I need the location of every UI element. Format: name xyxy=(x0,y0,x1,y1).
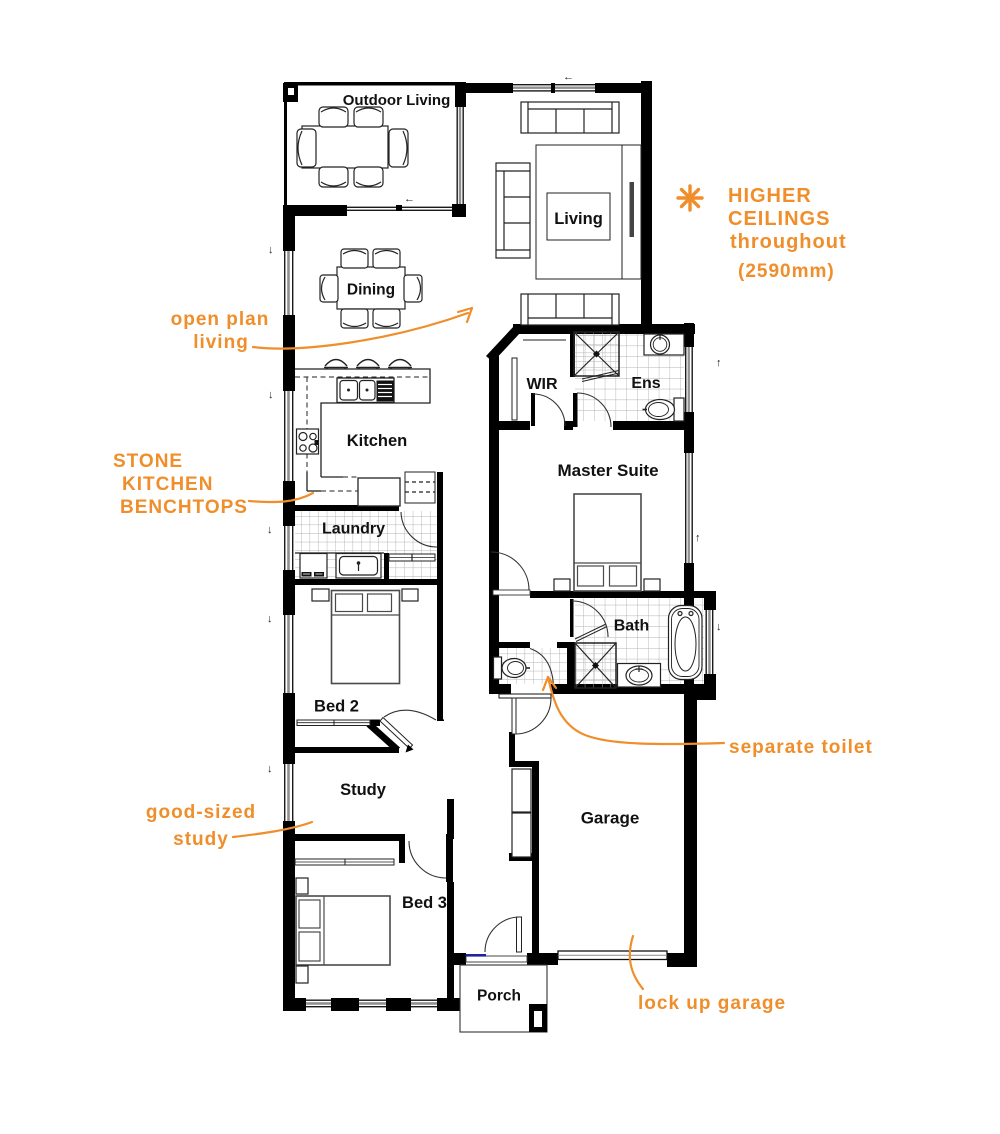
svg-text:Kitchen: Kitchen xyxy=(347,432,408,450)
svg-text:living: living xyxy=(193,332,249,353)
svg-text:↑: ↑ xyxy=(695,532,701,544)
svg-text:Bath: Bath xyxy=(614,618,650,635)
svg-text:Ens: Ens xyxy=(631,375,660,392)
svg-text:CEILINGS: CEILINGS xyxy=(728,208,830,230)
svg-text:BENCHTOPS: BENCHTOPS xyxy=(120,497,248,518)
svg-text:↓: ↓ xyxy=(268,244,274,256)
svg-text:lock up garage: lock up garage xyxy=(638,993,786,1014)
svg-text:WIR: WIR xyxy=(526,376,558,393)
svg-text:good-sized: good-sized xyxy=(146,802,256,823)
svg-text:↓: ↓ xyxy=(268,389,274,401)
svg-text:Living: Living xyxy=(554,210,603,228)
svg-text:↓: ↓ xyxy=(267,613,273,625)
svg-text:Master Suite: Master Suite xyxy=(557,461,658,480)
svg-text:(2590mm): (2590mm) xyxy=(738,261,835,282)
svg-text:Dining: Dining xyxy=(347,282,395,299)
svg-text:KITCHEN: KITCHEN xyxy=(122,474,213,495)
svg-text:Garage: Garage xyxy=(581,809,640,828)
svg-text:↑: ↑ xyxy=(716,357,722,369)
svg-text:←: ← xyxy=(404,193,415,205)
svg-text:separate toilet: separate toilet xyxy=(729,737,873,758)
svg-text:STONE: STONE xyxy=(113,451,183,472)
svg-text:Porch: Porch xyxy=(477,988,521,1005)
svg-text:Outdoor Living: Outdoor Living xyxy=(343,92,450,109)
svg-text:Bed 2: Bed 2 xyxy=(314,698,359,716)
svg-text:Study: Study xyxy=(340,781,387,799)
svg-text:HIGHER: HIGHER xyxy=(728,185,812,207)
svg-text:↓: ↓ xyxy=(267,524,273,536)
svg-text:Bed 3: Bed 3 xyxy=(402,894,447,912)
svg-text:←: ← xyxy=(563,71,574,83)
svg-text:study: study xyxy=(173,829,229,850)
svg-text:throughout: throughout xyxy=(730,231,847,253)
svg-text:↓: ↓ xyxy=(716,621,722,633)
svg-text:Laundry: Laundry xyxy=(322,521,385,538)
svg-text:↓: ↓ xyxy=(267,763,273,775)
svg-text:open plan: open plan xyxy=(171,309,270,330)
